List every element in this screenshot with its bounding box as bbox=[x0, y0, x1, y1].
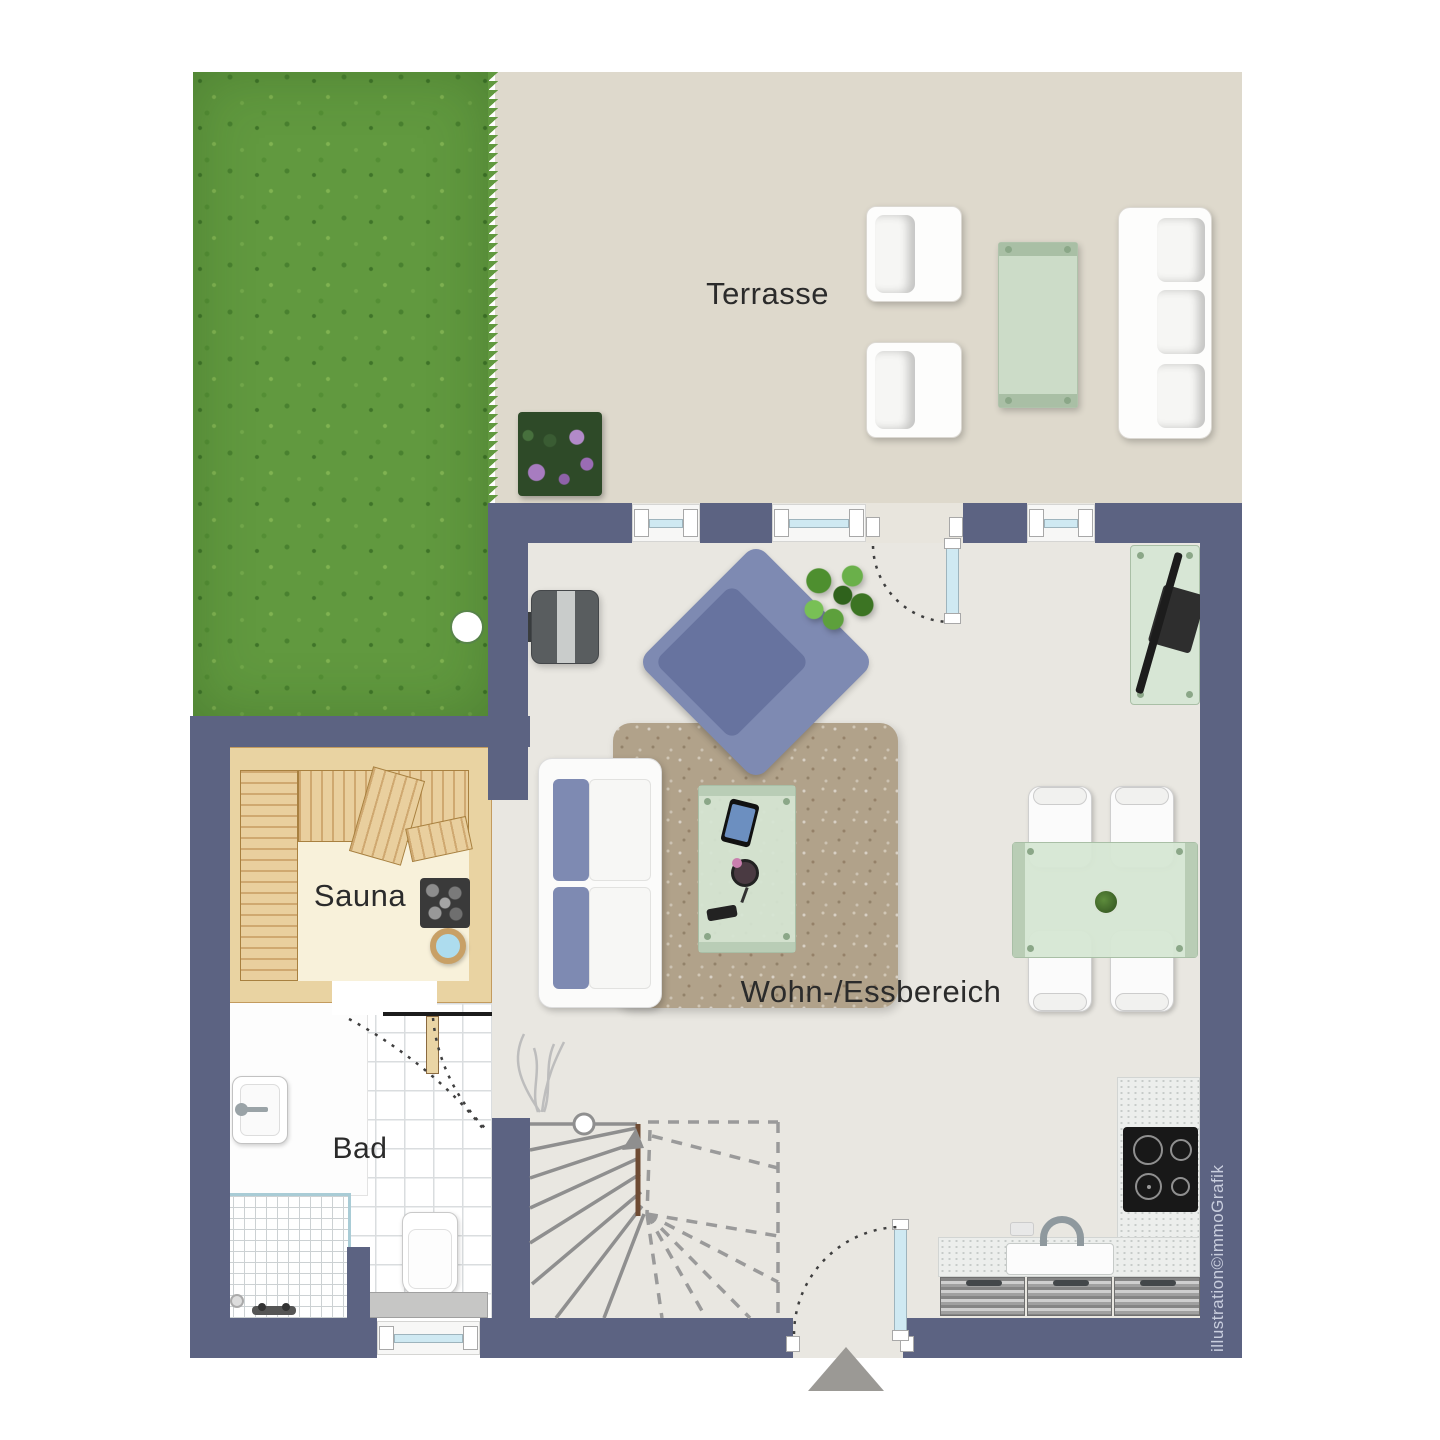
drawer-handle bbox=[1053, 1280, 1089, 1286]
dining-table-rail bbox=[1013, 843, 1025, 957]
bath-sink bbox=[232, 1076, 288, 1144]
sofa-back-cushion bbox=[553, 887, 589, 989]
watermark-text: illustration©immoGrafik bbox=[1208, 1120, 1234, 1352]
room-label-sauna: Sauna bbox=[280, 878, 440, 914]
chair-backrest bbox=[1033, 993, 1087, 1011]
window-glass bbox=[394, 1334, 463, 1343]
terrace-armchair bbox=[866, 342, 962, 438]
sauna-bench-left bbox=[240, 770, 298, 981]
terrace-door-leaf bbox=[946, 543, 959, 619]
table-screw bbox=[783, 933, 790, 940]
window bbox=[632, 504, 700, 542]
shower-glass-side bbox=[348, 1196, 351, 1252]
shower-glass-top bbox=[222, 1193, 351, 1196]
shower-drain bbox=[230, 1294, 244, 1308]
entrance-door-cap bbox=[892, 1219, 909, 1230]
shower-knob bbox=[258, 1303, 266, 1311]
room-label-living-dining: Wohn-/Essbereich bbox=[721, 974, 1021, 1010]
drawer-handle bbox=[966, 1280, 1002, 1286]
wall bbox=[190, 716, 230, 1358]
table-screw bbox=[1005, 397, 1012, 404]
bathroom-window bbox=[377, 1321, 480, 1355]
window-jamb bbox=[463, 1326, 478, 1350]
decor-stem bbox=[740, 887, 748, 903]
table-screw bbox=[1176, 945, 1183, 952]
kitchen-sink bbox=[1006, 1243, 1114, 1275]
dining-table-rail bbox=[1185, 843, 1197, 957]
entrance-door-cap bbox=[892, 1330, 909, 1341]
coffee-table-rail bbox=[699, 786, 795, 796]
window-jamb bbox=[683, 509, 698, 537]
flower-planter bbox=[518, 412, 602, 496]
table-screw bbox=[1186, 691, 1193, 698]
table-screw bbox=[1027, 945, 1034, 952]
chimney-circle bbox=[452, 612, 482, 642]
houseplant bbox=[790, 552, 886, 648]
drawer-handle bbox=[1140, 1280, 1176, 1286]
room-label-terrace: Terrasse bbox=[640, 276, 895, 312]
cooktop bbox=[1123, 1127, 1198, 1212]
garden-lawn bbox=[193, 72, 489, 716]
window-jamb bbox=[379, 1326, 394, 1350]
wall bbox=[963, 503, 1027, 543]
sofa-back-cushion bbox=[553, 779, 589, 881]
toilet-seat bbox=[408, 1229, 452, 1289]
table-screw bbox=[704, 933, 711, 940]
terrace-door-jamb bbox=[866, 517, 880, 537]
terrace-table bbox=[998, 242, 1078, 408]
table-screw bbox=[783, 798, 790, 805]
window-glass bbox=[1044, 519, 1078, 528]
bath-faucet-spout bbox=[246, 1107, 268, 1112]
table-centerpiece-plant bbox=[1093, 889, 1119, 915]
entrance-door-jamb bbox=[786, 1336, 800, 1352]
sofa-pillow bbox=[1157, 290, 1205, 354]
window-jamb bbox=[634, 509, 649, 537]
window-glass bbox=[789, 519, 849, 528]
kitchen-drawer bbox=[1027, 1277, 1112, 1316]
tablet bbox=[720, 798, 760, 848]
cooktop-burner bbox=[1171, 1177, 1190, 1196]
wood-stove bbox=[531, 590, 599, 664]
coffee-table-rail bbox=[699, 942, 795, 952]
window-jamb bbox=[849, 509, 864, 537]
wall bbox=[347, 1247, 370, 1318]
chair-backrest bbox=[1115, 993, 1169, 1011]
remote-control bbox=[706, 904, 738, 921]
shower-knob bbox=[282, 1303, 290, 1311]
coffee-table bbox=[698, 785, 796, 953]
armchair-pillow bbox=[875, 351, 915, 429]
wall bbox=[190, 716, 530, 747]
window bbox=[772, 504, 866, 542]
table-screw bbox=[1176, 848, 1183, 855]
bath-door-leaf bbox=[426, 1016, 439, 1074]
sofa-seat bbox=[589, 887, 651, 989]
table-screw bbox=[704, 798, 711, 805]
floor-plan: Terrasse Sauna Bad Wohn-/Essbereich illu… bbox=[0, 0, 1440, 1440]
sofa-pillow bbox=[1157, 364, 1205, 428]
wall bbox=[488, 503, 528, 800]
table-screw bbox=[1005, 246, 1012, 253]
kitchen-drawer bbox=[940, 1277, 1025, 1316]
stove-stripe bbox=[557, 591, 575, 663]
bath-radiator bbox=[362, 1292, 488, 1318]
cooktop-burner bbox=[1133, 1135, 1163, 1165]
lawn-edge bbox=[488, 72, 498, 504]
room-label-bath: Bad bbox=[300, 1132, 420, 1166]
terrace-sofa bbox=[1118, 207, 1212, 439]
chair-backrest bbox=[1115, 787, 1169, 805]
wall bbox=[492, 1118, 530, 1358]
window bbox=[1027, 504, 1095, 542]
terrace-door-cap bbox=[944, 613, 961, 624]
terrace-door-cap bbox=[944, 538, 961, 549]
burner-dot bbox=[1147, 1185, 1151, 1189]
sauna-bucket bbox=[430, 928, 466, 964]
sofa-pillow bbox=[1157, 218, 1205, 282]
decor-bowl bbox=[731, 859, 759, 887]
table-screw bbox=[1186, 552, 1193, 559]
table-screw bbox=[1027, 848, 1034, 855]
chair-backrest bbox=[1033, 787, 1087, 805]
table-screw bbox=[1064, 397, 1071, 404]
window-jamb bbox=[1029, 509, 1044, 537]
sofa bbox=[538, 758, 662, 1008]
dining-table bbox=[1012, 842, 1198, 958]
toilet bbox=[402, 1212, 458, 1296]
kitchen-drawer bbox=[1114, 1277, 1200, 1316]
wall bbox=[700, 503, 772, 543]
entrance-door-leaf bbox=[894, 1225, 907, 1339]
tablet-screen bbox=[724, 804, 756, 843]
window-jamb bbox=[1078, 509, 1093, 537]
wall bbox=[903, 1318, 1242, 1358]
kitchen-soap-dish bbox=[1010, 1222, 1034, 1236]
cooktop-burner bbox=[1170, 1139, 1192, 1161]
table-screw bbox=[1064, 246, 1071, 253]
window-glass bbox=[649, 519, 683, 528]
sauna-door-opening bbox=[332, 981, 437, 1015]
table-screw bbox=[1137, 552, 1144, 559]
sofa-seat bbox=[589, 779, 651, 881]
window-jamb bbox=[774, 509, 789, 537]
decor-flower bbox=[732, 858, 742, 868]
terrace-door-jamb bbox=[949, 517, 963, 537]
